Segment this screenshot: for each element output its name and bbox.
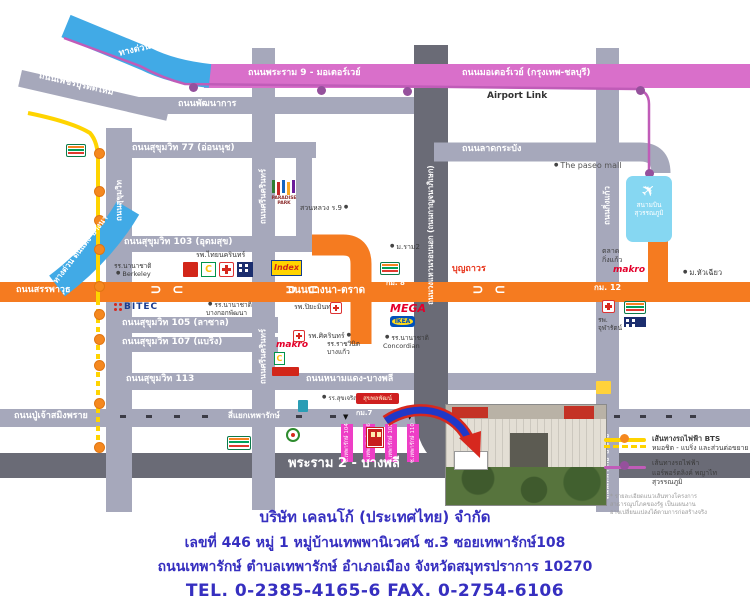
address-line2: ถนนเทพารักษ์ ตำบลเทพารักษ์ อำเภอเมือง จั… <box>0 556 750 578</box>
legend-bts-line2: หมอชิต - แบริ่ง และส่วนต่อขยาย <box>652 444 748 452</box>
legend-bts-text: เส้นทางรถไฟฟ้า BTS หมอชิต - แบริ่ง และส่… <box>652 434 749 453</box>
bts-station-dot-swatch <box>620 434 629 443</box>
phone-fax: TEL. 0-2385-4165-6 FAX. 0-2754-6106 <box>0 581 750 600</box>
legend-note-line1: * รายละเอียดแนวเส้นทางโครงการ <box>610 494 697 500</box>
route-map: ⊃⊂⊃⊂⊃⊂ซ.เทพารักษ์ 104ซ.เทพารักษ์ 106ซ.เท… <box>0 0 750 600</box>
legend-al-line1: เส้นทางรถไฟฟ้า <box>652 459 699 467</box>
legend-airport-link-text: เส้นทางรถไฟฟ้า แอร์พอร์ตลิงค์ พญาไท สุวร… <box>652 459 749 487</box>
company-address-block: บริษัท เคลนโก้ (ประเทศไทย) จำกัด เลขที่ … <box>0 505 750 600</box>
bts-dashed-line-swatch <box>604 445 646 448</box>
legend-bts-row: เส้นทางรถไฟฟ้า BTS หมอชิต - แบริ่ง และส่… <box>604 434 749 453</box>
legend-al-line2: แอร์พอร์ตลิงค์ พญาไท สุวรรณภูมิ <box>652 469 717 486</box>
legend-airport-link-row: เส้นทางรถไฟฟ้า แอร์พอร์ตลิงค์ พญาไท สุวร… <box>604 459 749 487</box>
address-line1: เลขที่ 446 หมู่ 1 หมู่บ้านเทพพานิเวศน์ ซ… <box>0 532 750 554</box>
company-name: บริษัท เคลนโก้ (ประเทศไทย) จำกัด <box>0 505 750 529</box>
legend-bts-line1: เส้นทางรถไฟฟ้า BTS <box>652 434 720 443</box>
